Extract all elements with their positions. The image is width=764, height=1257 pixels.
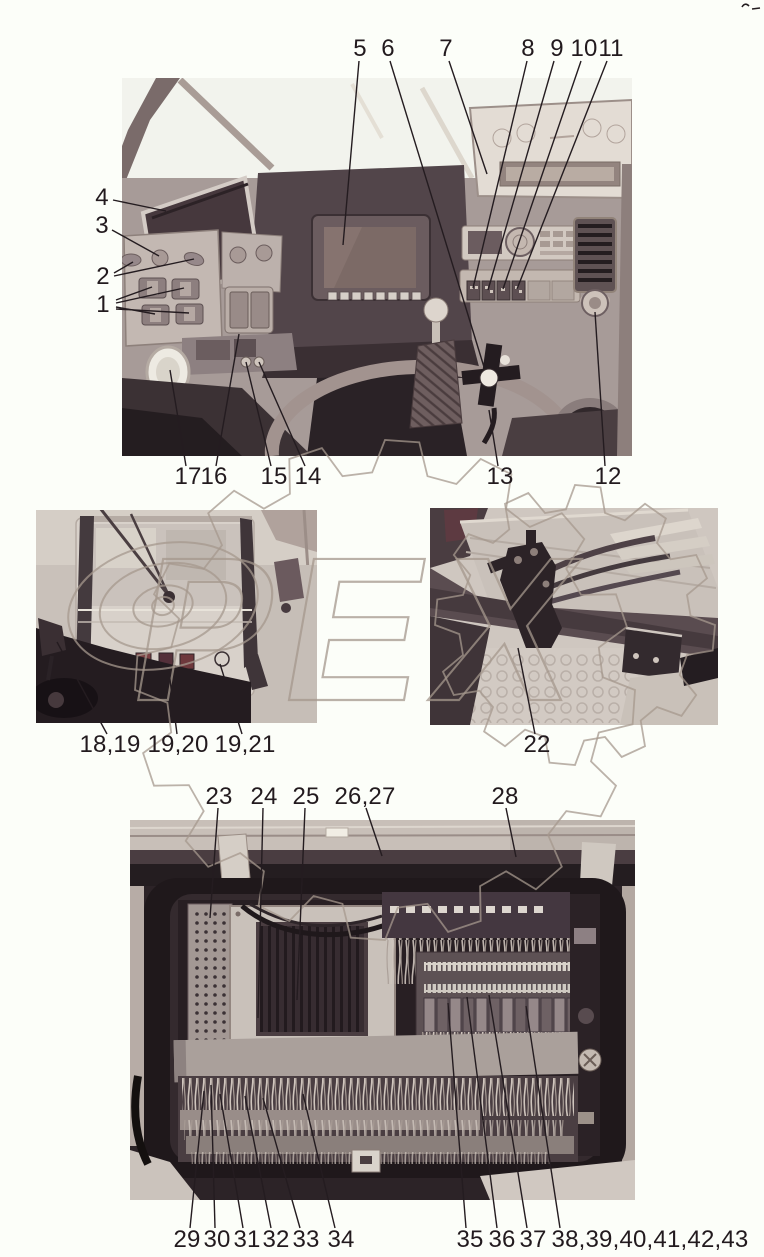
diagram-page: РЕХ 123456789101112131415161718,1919,201…: [0, 0, 764, 1257]
radio-volume-knob: [506, 228, 534, 256]
callout-label-19-20: 19,20: [147, 733, 208, 757]
toggle-lever-left: [122, 254, 141, 266]
callout-label-34: 34: [327, 1228, 354, 1252]
callout-label-25: 25: [292, 785, 319, 809]
callout-label-37: 37: [519, 1228, 546, 1252]
callout-label-18-19: 18,19: [79, 733, 140, 757]
callout-label-5: 5: [353, 37, 367, 61]
callout-label-14: 14: [294, 465, 321, 489]
callout-label-31: 31: [233, 1228, 260, 1252]
callout-label-29: 29: [173, 1228, 200, 1252]
din-rail: [382, 892, 570, 938]
callout-label-17: 17: [174, 465, 201, 489]
panel-switches: [467, 281, 574, 300]
callout-label-15: 15: [260, 465, 287, 489]
knob: [152, 250, 168, 266]
callout-label-16: 16: [200, 465, 227, 489]
callout-label-22: 22: [523, 733, 550, 757]
callout-label-30: 30: [203, 1228, 230, 1252]
joystick-boot: [410, 340, 462, 428]
callout-label-26-27: 26,27: [334, 785, 395, 809]
callout-label-19-21: 19,21: [214, 733, 275, 757]
photo-dashboard: [122, 78, 632, 456]
rear-lamp: [180, 654, 194, 669]
callout-label-38-39-40-41-42-43: 38,39,40,41,42,43: [552, 1228, 749, 1252]
callout-label-32: 32: [262, 1228, 289, 1252]
callout-label-12: 12: [594, 465, 621, 489]
callout-label-24: 24: [250, 785, 277, 809]
joystick-knob: [424, 298, 448, 322]
small-lever-knob: [254, 357, 264, 367]
callout-label-6: 6: [381, 37, 395, 61]
callout-label-2: 2: [96, 265, 110, 289]
callout-label-10: 10: [570, 37, 597, 61]
transformer: [260, 926, 364, 1032]
callout-label-28: 28: [491, 785, 518, 809]
aux-knob-panel: [222, 232, 282, 292]
cable-duct: [174, 1032, 579, 1082]
callout-label-35: 35: [456, 1228, 483, 1252]
callout-label-3: 3: [95, 214, 109, 238]
callout-label-36: 36: [488, 1228, 515, 1252]
callout-label-23: 23: [205, 785, 232, 809]
photo-electrical-box: [130, 820, 635, 1200]
callout-label-7: 7: [439, 37, 453, 61]
perforated-floor: [460, 653, 630, 723]
callout-label-8: 8: [521, 37, 535, 61]
wiper-pivot: [163, 591, 175, 603]
callout-label-4: 4: [95, 186, 109, 210]
photo-underside: [430, 508, 718, 725]
callout-label-9: 9: [550, 37, 564, 61]
callout-label-33: 33: [292, 1228, 319, 1252]
photo-cab-rear: [36, 510, 317, 723]
callout-label-13: 13: [486, 465, 513, 489]
callout-label-11: 11: [598, 37, 623, 61]
hinge-clip: [218, 834, 250, 882]
callout-label-1: 1: [96, 293, 110, 317]
small-lever-knob: [241, 357, 251, 367]
radio-buttons: [540, 231, 576, 255]
